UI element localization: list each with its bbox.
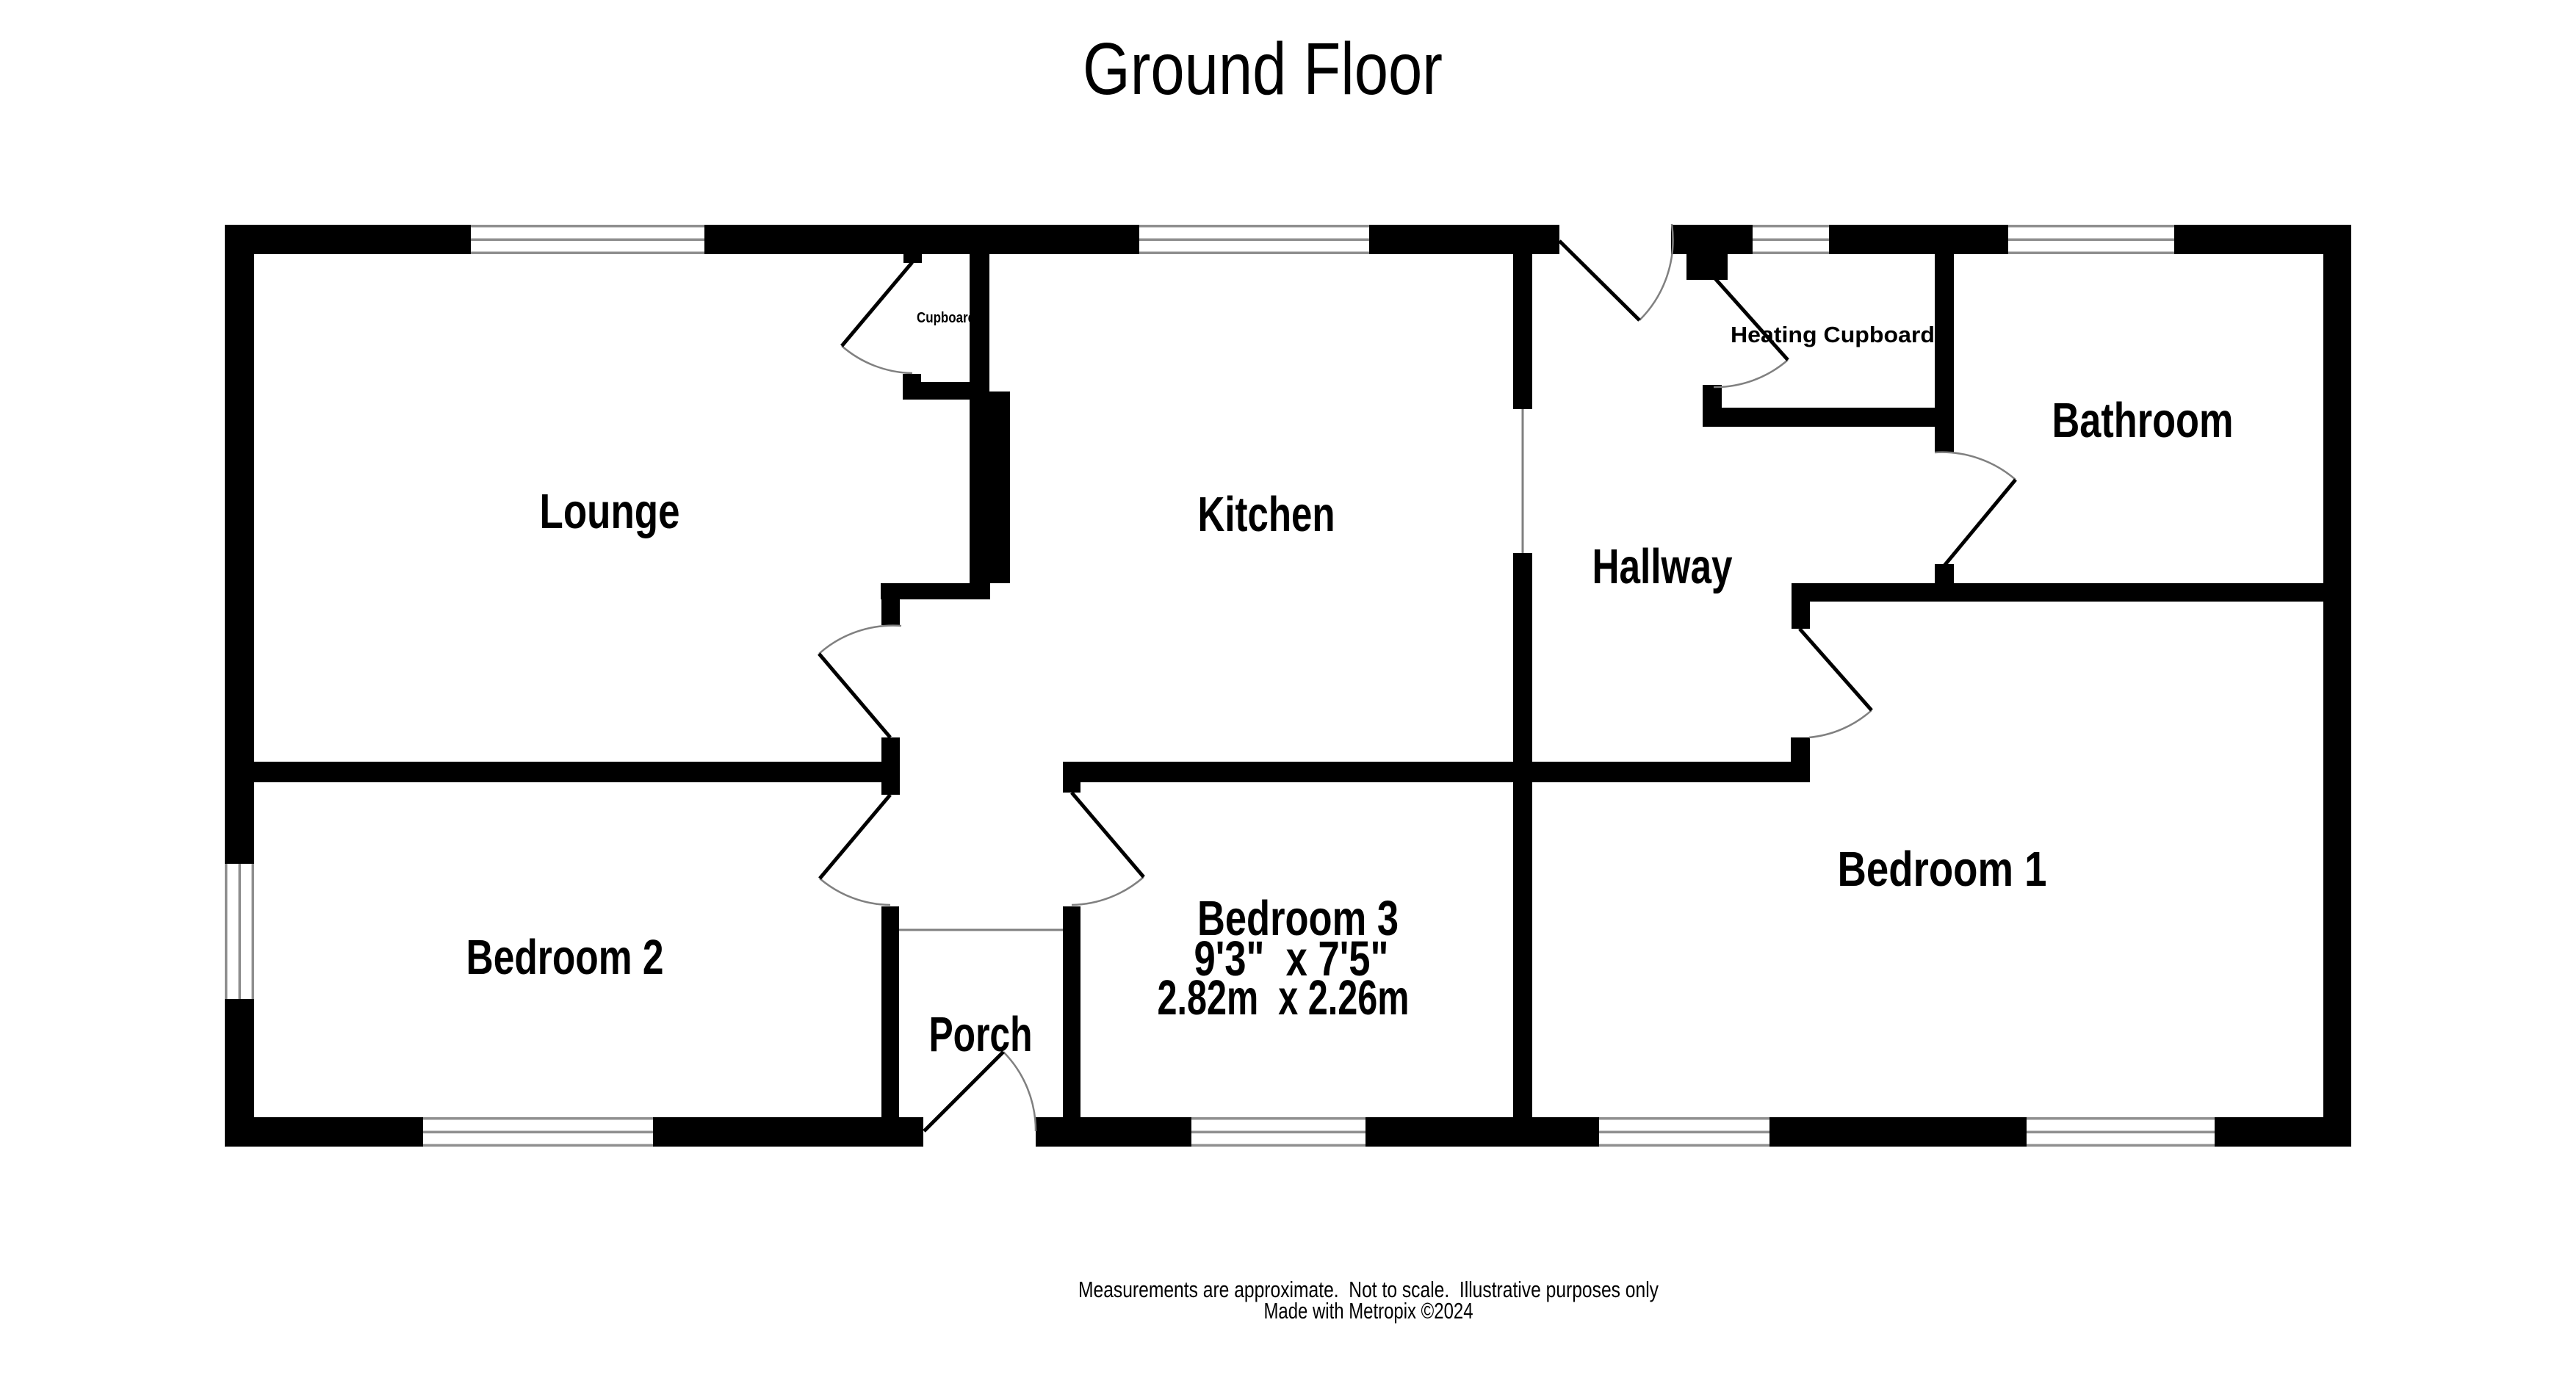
svg-text:Heating Cupboard: Heating Cupboard [1731, 322, 1935, 347]
svg-text:Bedroom 2: Bedroom 2 [466, 930, 664, 985]
svg-text:Porch: Porch [929, 1007, 1033, 1062]
svg-text:Bathroom: Bathroom [2052, 393, 2234, 448]
svg-text:Cupboard: Cupboard [917, 310, 975, 326]
svg-text:Lounge: Lounge [540, 484, 680, 539]
svg-text:Hallway: Hallway [1592, 539, 1733, 594]
svg-text:Ground Floor: Ground Floor [1083, 28, 1443, 110]
svg-text:Bedroom 1: Bedroom 1 [1838, 842, 2047, 897]
svg-text:Kitchen: Kitchen [1198, 487, 1335, 542]
svg-text:Made with Metropix ©2024: Made with Metropix ©2024 [1264, 1298, 1473, 1324]
svg-text:2.82m x 2.26m: 2.82m x 2.26m [1158, 970, 1410, 1025]
